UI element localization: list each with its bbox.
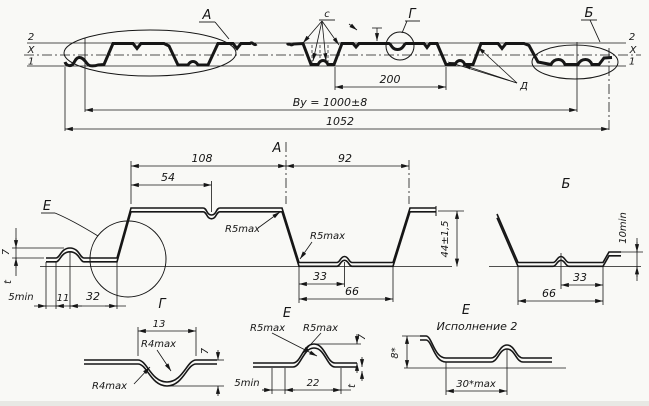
detail-e-title: Е [283,306,292,321]
dim-92-text: 92 [338,152,352,165]
view-a-label-e: Е [43,199,52,214]
e-r5max-left-text: R5max [250,323,285,334]
ref-label-1-left: 1 [28,57,34,68]
label-b: Б [585,6,594,21]
e-dim-5min-text: 5min [234,378,259,389]
dim-1052-text: 1052 [326,115,354,128]
dim-108-text: 108 [192,152,213,165]
label-d: Д [519,81,528,92]
r4max-bottom-text: R4max [92,381,127,392]
ref-label-2-left: 2 [28,32,34,43]
view-a-title: А [272,141,282,156]
dim-32-text: 32 [86,290,100,303]
view-a-dim-7-text: 7 [1,248,12,255]
view-b-dim-66-text: 66 [542,287,556,300]
view-b-title: Б [562,177,571,192]
ref-label-x-left: X [27,45,36,56]
e2-dim-8-text: 8* [390,347,401,358]
dim-33-text: 33 [313,270,327,283]
e-dim-7-text: 7 [357,333,368,340]
dim-1000-text: Вy = 1000±8 [293,96,367,109]
ref-label-x-right: X [629,45,638,56]
e2-dim-30-text: 30*max [456,379,496,390]
e-r5max-right-text: R5max [303,323,338,334]
ref-label-1-right: 1 [629,57,635,68]
e-dim-22-text: 22 [307,378,320,389]
detail-e2-subtitle: Исполнение 2 [437,320,518,333]
view-b-dim-33-text: 33 [573,271,587,284]
dim-10min-text: 10min [618,212,629,244]
ref-label-2-right: 2 [629,32,635,43]
detail-e2-title: Е [462,303,471,318]
dim-11-text: 11 [57,293,70,304]
dim-66-text: 66 [345,285,359,298]
r5max-top-text: R5max [225,224,260,235]
label-a: А [202,8,212,23]
label-c: с [324,9,330,20]
technical-drawing: 2 X 1 2 X 1 А с [0,0,649,401]
dim-200-text: 200 [380,73,401,86]
dim-13-text: 13 [153,319,166,330]
r4max-top-text: R4max [141,339,176,350]
drawing-sheet: 2 X 1 2 X 1 А с [0,0,649,401]
r5max-bottom-text: R5max [310,231,345,242]
dim-44-text: 44±1,5 [440,220,451,257]
dim-54-text: 54 [161,171,175,184]
dim-5min-text: 5min [8,292,33,303]
detail-g-dim-7-text: 7 [200,347,211,354]
